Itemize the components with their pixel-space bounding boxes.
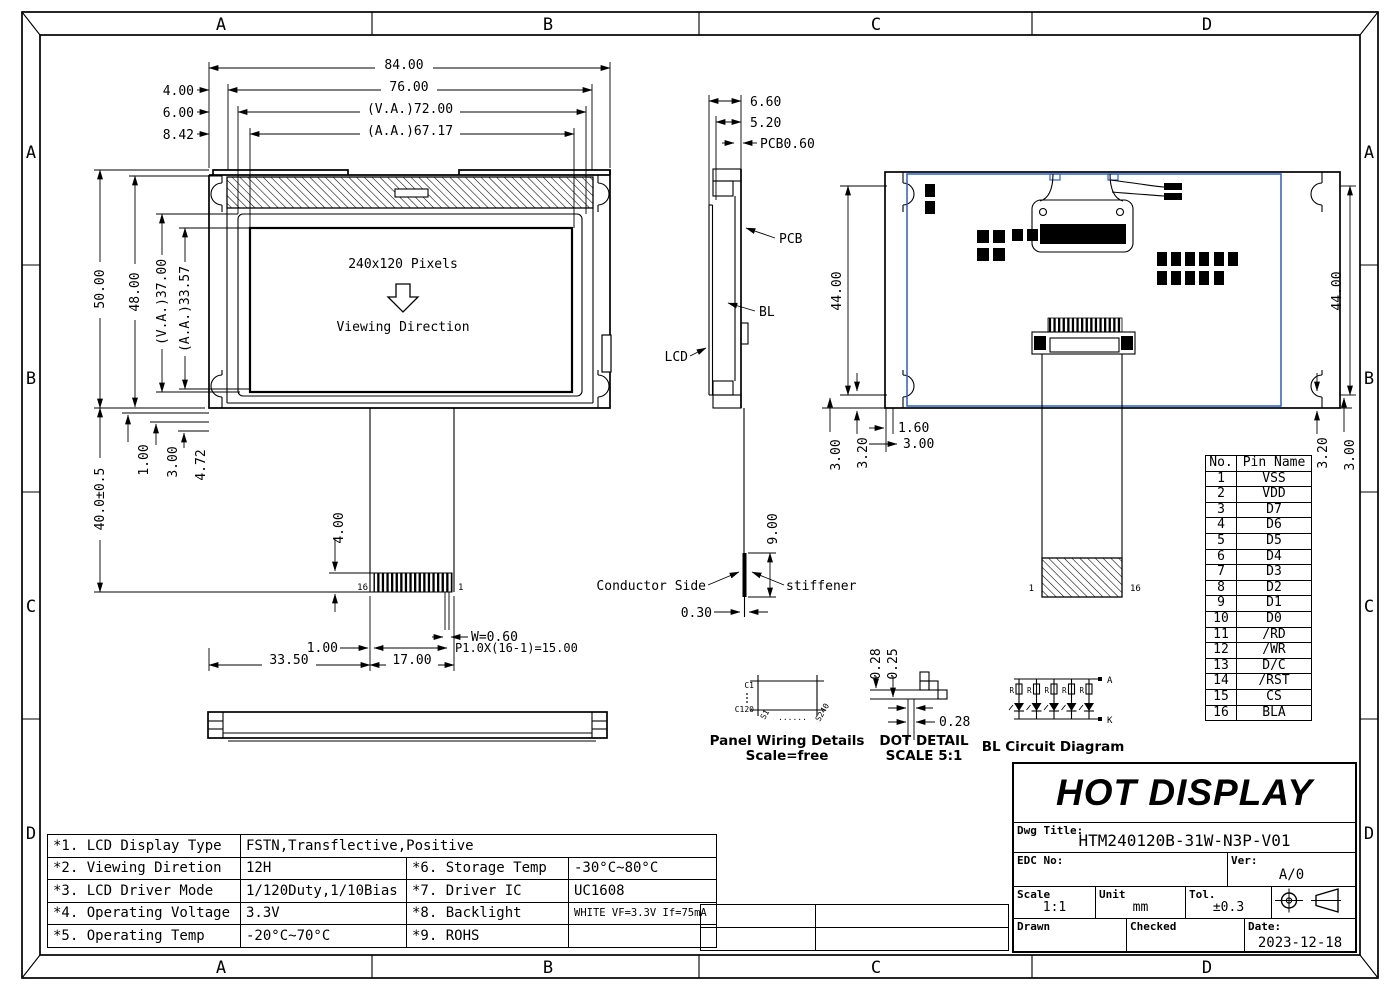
pin-name: D4 <box>1237 549 1312 565</box>
pin-no: 5 <box>1206 533 1237 549</box>
side-view: 6.60 5.20 PCB0.60 PCB BL LCD 9.00 Conduc… <box>596 95 856 621</box>
dim-aa-width: (A.A.)67.17 <box>367 124 453 139</box>
zone-row-d-left: D <box>26 824 36 844</box>
panel-wiring-details: C1 C120 S1 S240 ...... Panel Wiring Deta… <box>710 675 865 764</box>
engineering-drawing-sheet: A B C D A B C D A B C D A B C D <box>0 0 1400 990</box>
pin-name: D3 <box>1237 565 1312 581</box>
screen-resolution-label: 240x120 Pixels <box>348 257 458 272</box>
bottom-view <box>208 712 607 741</box>
pcb-outline <box>907 174 1281 406</box>
pin-no: 9 <box>1206 596 1237 612</box>
zone-row-a-left: A <box>26 143 36 163</box>
pin-no: 10 <box>1206 611 1237 627</box>
table-row: 4D6 <box>1206 518 1312 534</box>
pin-no: 3 <box>1206 502 1237 518</box>
front-view: 240x120 Pixels Viewing Direction 84.00 4… <box>93 58 611 671</box>
scale-unit-tol-row: Scale 1:1 Unit mm Tol. ±0.3 <box>1014 886 1355 918</box>
lcd-label: LCD <box>665 350 689 365</box>
bl-anode-label: A <box>1107 676 1113 686</box>
pin-no: 2 <box>1206 487 1237 503</box>
bl-resistor-label: R <box>1009 686 1014 695</box>
wiring-c120-label: C120 <box>735 705 754 714</box>
front-pin16-label: 16 <box>357 583 368 593</box>
stiffener-label: stiffener <box>786 579 857 594</box>
zone-col-c-top: C <box>871 15 881 35</box>
pin-table: No. Pin Name 1VSS 2VDD 3D7 4D6 5D5 6D4 7… <box>1205 455 1312 721</box>
table-row: *5. Operating Temp -20°C~70°C *9. ROHS <box>48 925 717 948</box>
table-row: 3D7 <box>1206 502 1312 518</box>
spec-value: UC1608 <box>569 880 717 903</box>
spec-label: *1. LCD Display Type <box>48 835 241 858</box>
table-row: 15CS <box>1206 689 1312 705</box>
zone-col-a-top: A <box>216 15 226 35</box>
bl-cathode-label: K <box>1107 716 1113 726</box>
pcb-label: PCB <box>779 232 803 247</box>
dim-3350: 33.50 <box>269 653 308 668</box>
dim-44-right: 44.00 <box>1330 271 1345 310</box>
dim-32-right: 3.20 <box>1316 437 1331 468</box>
dot-dim-v1: 0.28 <box>869 648 884 679</box>
dim-6: 6.00 <box>163 106 194 121</box>
conductor-side-label: Conductor Side <box>596 579 706 594</box>
spec-label: *4. Operating Voltage <box>48 902 241 925</box>
bl-led-branches: R R R R <box>1009 679 1094 719</box>
dim-3-left: 3.00 <box>829 439 844 470</box>
pin-name: D6 <box>1237 518 1312 534</box>
pin-no-header: No. <box>1206 456 1237 472</box>
table-row: 8D2 <box>1206 580 1312 596</box>
drawn-label: Drawn <box>1017 920 1050 933</box>
table-row: 12/WR <box>1206 643 1312 659</box>
projection-symbol-icon <box>1272 887 1344 914</box>
spec-label: *5. Operating Temp <box>48 925 241 948</box>
spec-value <box>569 925 717 948</box>
panel-wiring-subtitle: Scale=free <box>746 748 829 764</box>
spec-value: WHITE VF=3.3V If=75mA <box>569 902 717 925</box>
spec-value: 3.3V <box>241 902 407 925</box>
unit-value: mm <box>1096 900 1185 915</box>
dim-842: 8.42 <box>163 128 194 143</box>
pin-no: 7 <box>1206 565 1237 581</box>
dot-dim-h2: 0.28 <box>939 715 970 730</box>
pin-no: 1 <box>1206 471 1237 487</box>
pin-name: CS <box>1237 689 1312 705</box>
pin-name: BLA <box>1237 705 1312 721</box>
dim-32-left: 3.20 <box>856 437 871 468</box>
zone-col-b-bottom: B <box>543 958 553 978</box>
dim-472: 4.72 <box>194 449 209 480</box>
company-logo: HOT DISPLAY <box>1014 764 1355 822</box>
spec-table-extension <box>700 904 1009 951</box>
pin-name: VDD <box>1237 487 1312 503</box>
pin-name: D1 <box>1237 596 1312 612</box>
date-value: 2023-12-18 <box>1245 935 1355 951</box>
dim-tail-length: 40.0±0.5 <box>93 468 108 531</box>
pin-no: 13 <box>1206 658 1237 674</box>
spec-label: *9. ROHS <box>407 925 569 948</box>
dim-030: 0.30 <box>681 606 712 621</box>
table-row: *1. LCD Display Type FSTN,Transflective,… <box>48 835 717 858</box>
dim-pcb-thickness: PCB0.60 <box>760 137 815 152</box>
dim-76: 76.00 <box>389 80 428 95</box>
bl-resistor-label: R <box>1079 686 1084 695</box>
pin-name: VSS <box>1237 471 1312 487</box>
tolerance-value: ±0.3 <box>1186 900 1271 915</box>
dim-660: 6.60 <box>750 95 781 110</box>
empty-cell <box>701 905 816 928</box>
zone-col-d-bottom: D <box>1202 958 1212 978</box>
wiring-s240-label: S240 <box>814 702 832 723</box>
dim-900: 9.00 <box>766 513 781 544</box>
table-row: *3. LCD Driver Mode 1/120Duty,1/10Bias *… <box>48 880 717 903</box>
dim-44-left: 44.00 <box>830 271 845 310</box>
dim-160: 1.60 <box>898 421 929 436</box>
spec-label: *3. LCD Driver Mode <box>48 880 241 903</box>
pin-no: 4 <box>1206 518 1237 534</box>
dim-aa-height: (A.A.)33.57 <box>178 266 193 352</box>
dim-1mm: 1.00 <box>137 444 152 475</box>
wiring-dots: ...... <box>778 713 807 722</box>
zone-row-d-right: D <box>1364 824 1374 844</box>
pin-no: 8 <box>1206 580 1237 596</box>
empty-cell <box>701 927 816 950</box>
pin-name: /WR <box>1237 643 1312 659</box>
dot-dim-v2: 0.25 <box>886 648 901 679</box>
scale-value: 1:1 <box>1014 900 1095 915</box>
bl-resistor-label: R <box>1027 686 1032 695</box>
dim-48: 48.00 <box>128 272 143 311</box>
dim-4: 4.00 <box>163 84 194 99</box>
version-value: A/0 <box>1228 867 1355 883</box>
dim-va-width: (V.A.)72.00 <box>367 102 453 117</box>
pin-no: 16 <box>1206 705 1237 721</box>
zone-row-b-left: B <box>26 369 36 389</box>
empty-cell <box>816 927 1009 950</box>
table-row: 14/RST <box>1206 674 1312 690</box>
dim-3-right: 3.00 <box>1343 439 1358 470</box>
wiring-c1-label: C1 <box>744 681 754 690</box>
table-row: 13D/C <box>1206 658 1312 674</box>
dim-1700: 17.00 <box>392 653 431 668</box>
viewing-direction-label: Viewing Direction <box>336 320 469 335</box>
dot-detail-subtitle: SCALE 5:1 <box>886 748 963 764</box>
pin-no: 11 <box>1206 627 1237 643</box>
table-row: 1VSS <box>1206 471 1312 487</box>
title-block: HOT DISPLAY Dwg Title: HTM240120B-31W-N3… <box>1012 762 1357 953</box>
pin-no: 15 <box>1206 689 1237 705</box>
bl-resistor-label: R <box>1044 686 1049 695</box>
table-row <box>701 927 1009 950</box>
dim-pitch: P1.0X(16-1)=15.00 <box>455 641 578 655</box>
pin-table-header: No. Pin Name <box>1206 456 1312 472</box>
table-row: *2. Viewing Diretion 12H *6. Storage Tem… <box>48 857 717 880</box>
dim-3-center: 3.00 <box>903 437 934 452</box>
spec-value: -30°C~80°C <box>569 857 717 880</box>
date-label: Date: <box>1248 920 1281 933</box>
pin-name: D5 <box>1237 533 1312 549</box>
spec-label: *2. Viewing Diretion <box>48 857 241 880</box>
bl-resistor-label: R <box>1062 686 1067 695</box>
pin-name: D0 <box>1237 611 1312 627</box>
pin-name: D/C <box>1237 658 1312 674</box>
table-row: 16BLA <box>1206 705 1312 721</box>
spec-label: *6. Storage Temp <box>407 857 569 880</box>
signature-row: Drawn Checked Date: 2023-12-18 <box>1014 918 1355 953</box>
dwg-title-value: HTM240120B-31W-N3P-V01 <box>1014 831 1355 850</box>
spec-label: *8. Backlight <box>407 902 569 925</box>
spec-value: FSTN,Transflective,Positive <box>241 835 717 858</box>
table-row: 7D3 <box>1206 565 1312 581</box>
spec-table: *1. LCD Display Type FSTN,Transflective,… <box>47 834 717 948</box>
table-row: 2VDD <box>1206 487 1312 503</box>
table-row: 5D5 <box>1206 533 1312 549</box>
table-row: 10D0 <box>1206 611 1312 627</box>
bl-circuit-title: BL Circuit Diagram <box>982 739 1125 755</box>
table-row: 9D1 <box>1206 596 1312 612</box>
spec-value: 12H <box>241 857 407 880</box>
front-pin1-label: 1 <box>458 583 463 593</box>
zone-row-c-right: C <box>1364 597 1374 617</box>
rear-pin1-label: 1 <box>1029 584 1034 594</box>
table-row: *4. Operating Voltage 3.3V *8. Backlight… <box>48 902 717 925</box>
panel-wiring-title: Panel Wiring Details <box>710 733 865 749</box>
dot-detail-title: DOT DETAIL <box>879 733 969 749</box>
pin-no: 6 <box>1206 549 1237 565</box>
pin-name: D7 <box>1237 502 1312 518</box>
dim-50: 50.00 <box>93 269 108 308</box>
edc-no-label: EDC No: <box>1017 854 1063 867</box>
dim-84: 84.00 <box>384 58 423 73</box>
backlight-label: BL <box>759 305 775 320</box>
version-label: Ver: <box>1231 854 1258 867</box>
pin-no: 12 <box>1206 643 1237 659</box>
zone-row-c-left: C <box>26 597 36 617</box>
spec-value: -20°C~70°C <box>241 925 407 948</box>
pin-name: /RST <box>1237 674 1312 690</box>
pin-name-header: Pin Name <box>1237 456 1312 472</box>
zone-row-a-right: A <box>1364 143 1374 163</box>
dim-3mm: 3.00 <box>166 446 181 477</box>
zone-col-d-top: D <box>1202 15 1212 35</box>
zone-col-b-top: B <box>543 15 553 35</box>
dim-520: 5.20 <box>750 116 781 131</box>
pin-name: /RD <box>1237 627 1312 643</box>
rear-pin16-label: 16 <box>1130 584 1141 594</box>
spec-label: *7. Driver IC <box>407 880 569 903</box>
table-row: 6D4 <box>1206 549 1312 565</box>
dwg-title-row: Dwg Title: HTM240120B-31W-N3P-V01 <box>1014 822 1355 852</box>
pin-no: 14 <box>1206 674 1237 690</box>
empty-cell <box>816 905 1009 928</box>
zone-col-a-bottom: A <box>216 958 226 978</box>
table-row: 11/RD <box>1206 627 1312 643</box>
spec-value: 1/120Duty,1/10Bias <box>241 880 407 903</box>
dim-va-height: (V.A.)37.00 <box>155 259 170 345</box>
edc-ver-row: EDC No: Ver: A/0 <box>1014 852 1355 886</box>
dot-detail: 0.28 0.25 0.28 DOT DETAIL SCALE 5:1 <box>869 648 970 764</box>
table-row <box>701 905 1009 928</box>
dim-connector-height: 4.00 <box>332 512 347 543</box>
checked-label: Checked <box>1130 920 1176 933</box>
zone-row-b-right: B <box>1364 369 1374 389</box>
pin-name: D2 <box>1237 580 1312 596</box>
bl-circuit-diagram: A K R R R <box>982 676 1125 755</box>
zone-col-c-bottom: C <box>871 958 881 978</box>
